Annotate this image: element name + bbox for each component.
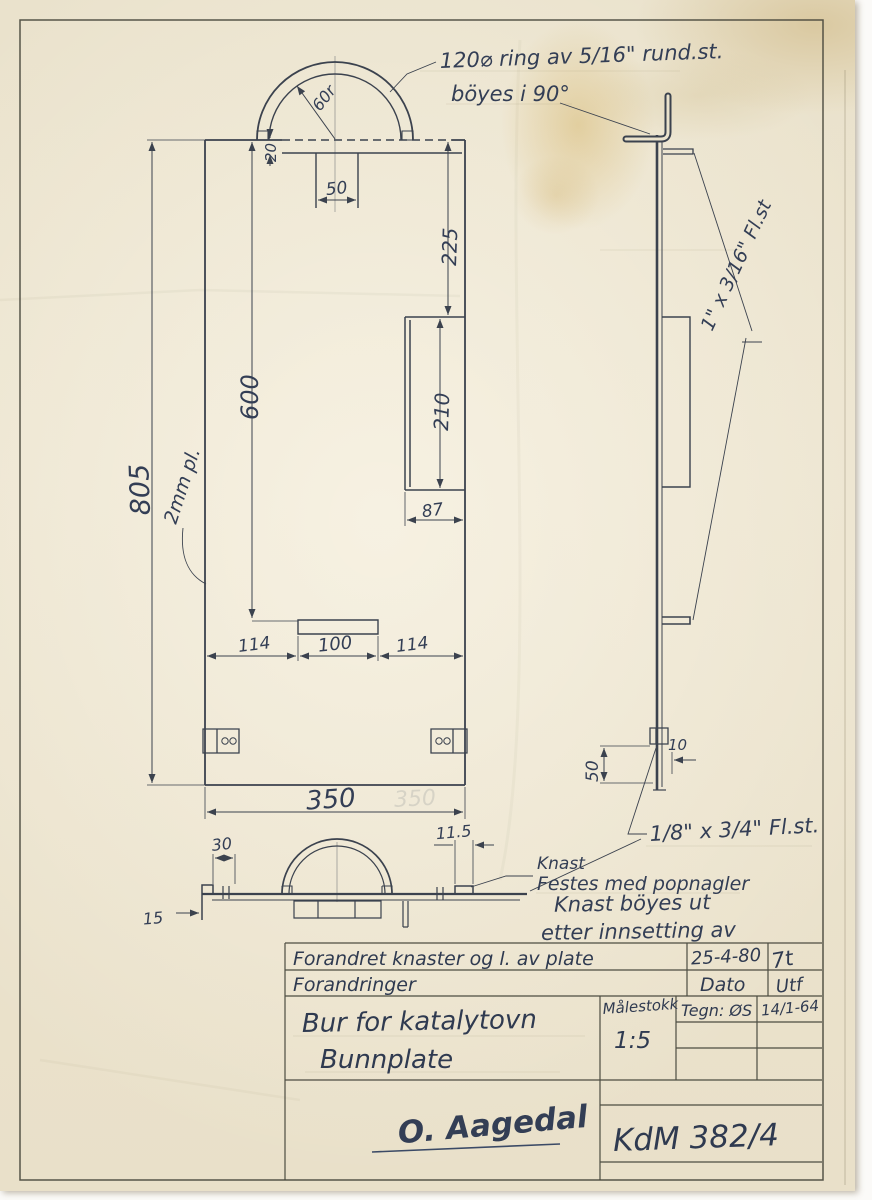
right-rivet-tab <box>431 729 467 753</box>
change-sign: 7t <box>770 946 796 974</box>
drawing-linework: 120⌀ ring av 5/16" rund.st. böyes i 90° … <box>0 0 872 1200</box>
dim-115-ext <box>455 840 473 884</box>
dim-100-label: 100 <box>317 632 353 656</box>
annotations-text: 120⌀ ring av 5/16" rund.st. böyes i 90° … <box>124 39 820 945</box>
bottom-left-bend <box>202 885 213 920</box>
drawn-by: Tegn: ØS <box>681 1001 752 1020</box>
bottom-under-box <box>294 901 381 918</box>
rivet-hole <box>222 738 228 744</box>
dim-50-label: 50 <box>325 178 349 200</box>
crease-line <box>40 1060 300 1100</box>
knast-label: Knast <box>537 854 586 874</box>
title-line1: Bur for katalytovn <box>302 1005 537 1039</box>
ring-radius-label: 60r <box>308 80 340 114</box>
dim-side-10-label: 10 <box>668 736 687 754</box>
signature: O. Aagedal <box>396 1099 589 1151</box>
ring-note-leader <box>390 62 436 92</box>
rivet-hole <box>436 738 442 744</box>
scanned-drawing-sheet: 120⌀ ring av 5/16" rund.st. böyes i 90° … <box>0 0 872 1200</box>
erased-note-line2: etter innsetting av <box>541 918 737 945</box>
knast-leader <box>471 876 533 887</box>
dim-15-label: 15 <box>142 908 164 929</box>
side-top-flange <box>663 149 693 154</box>
dim-225-label: 225 <box>437 227 462 266</box>
note-2mm-leader <box>182 528 206 584</box>
side-mid-flange <box>662 617 690 624</box>
drawing-number: KdM 382/4 <box>612 1117 779 1159</box>
dim-115-label: 11.5 <box>435 821 472 843</box>
ring-note-line1: 120⌀ ring av 5/16" rund.st. <box>439 39 723 73</box>
left-rivet-tab <box>203 729 239 753</box>
rivet-hole <box>230 738 236 744</box>
dim-210-label: 210 <box>429 392 454 431</box>
dim-600-label: 600 <box>236 374 264 420</box>
flat-steel-leader-mid <box>693 338 746 620</box>
crease-line <box>500 40 520 880</box>
side-slot-protrusion <box>662 317 690 487</box>
bottom-step-strip <box>298 620 378 634</box>
ring-note-line2: böyes i 90° <box>451 82 570 106</box>
revisions-label: Forandringer <box>293 974 417 996</box>
change-note: Forandret knaster og l. av plate <box>293 948 594 970</box>
note-2mm-label: 2mm pl. <box>160 445 205 526</box>
title-line2: Bunnplate <box>320 1045 453 1075</box>
front-outline <box>205 140 465 785</box>
bottom-hanging-tab <box>403 901 408 927</box>
bend-note-leader <box>560 103 650 134</box>
side-flat-steel-label: 1" x 3/16" Fl.st <box>697 195 777 334</box>
dim-114l-label: 114 <box>237 633 272 657</box>
dim-side-50-label: 50 <box>583 760 603 782</box>
drawn-date: 14/1-64 <box>760 997 820 1020</box>
change-date: 25-4-80 <box>690 945 761 970</box>
dim-side-50-ext <box>600 746 653 783</box>
rivet-hole <box>444 738 450 744</box>
dim-20-label: 20 <box>262 143 280 162</box>
scale-label: Målestokk <box>602 995 680 1018</box>
date-label: Dato <box>700 974 745 996</box>
done-label: Utf <box>775 974 806 997</box>
dim-350-label: 350 <box>305 783 357 816</box>
dim-350-ghost: 350 <box>393 786 436 813</box>
dim-30-label: 30 <box>211 834 233 855</box>
crease-line <box>0 290 460 300</box>
side-bottom-bracket <box>650 728 668 744</box>
dim-805-label: 805 <box>124 463 157 516</box>
bottom-flat-steel-label: 1/8" x 3/4" Fl.st. <box>649 813 820 846</box>
title-block-text: Forandret knaster og l. av plate 25-4-80… <box>293 945 820 1159</box>
dim-114r-label: 114 <box>395 633 430 657</box>
dim-87-label: 87 <box>421 499 445 522</box>
bottom-right-knast <box>455 886 473 894</box>
side-view <box>600 96 762 834</box>
scale-value: 1:5 <box>614 1028 651 1054</box>
erased-note-line1: Knast böyes ut <box>554 890 712 917</box>
